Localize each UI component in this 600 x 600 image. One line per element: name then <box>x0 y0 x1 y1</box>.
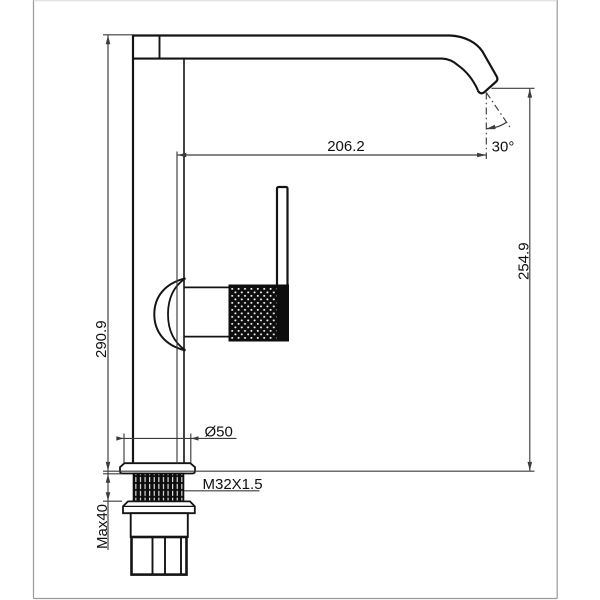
handle-lever <box>277 187 288 287</box>
dim-label-overall-height: 290.9 <box>93 320 110 358</box>
arrow-down <box>106 462 111 471</box>
dim-label-spout-angle: 30° <box>492 139 515 156</box>
dim-spout-reach: 206.2 <box>177 138 486 463</box>
mounting-thread <box>134 474 184 502</box>
thread-label: M32X1.5 <box>203 476 263 493</box>
dim-label-outlet-height: 254.9 <box>516 242 533 280</box>
arrow-left <box>116 436 123 440</box>
lever-shaft <box>277 286 289 341</box>
locknut-body <box>131 513 188 537</box>
spout-outer-profile <box>133 36 497 464</box>
dim-spout-angle: 30° <box>486 93 515 160</box>
callout-thread: M32X1.5 <box>184 476 263 493</box>
angle-arrow <box>486 125 496 130</box>
base-flange <box>120 463 195 473</box>
dim-base-diameter: Ø50 <box>116 423 236 463</box>
ribbed-nut <box>132 537 187 575</box>
arrow-down <box>528 462 533 471</box>
arrow-right <box>191 436 198 440</box>
arrow-up <box>106 35 111 44</box>
cartridge-dome-outer <box>154 278 185 350</box>
dim-outlet-height: 254.9 <box>103 88 535 471</box>
arrow-down <box>106 492 111 501</box>
drawing-canvas: 206.2 30° 254.9 290.9 Max40 <box>0 0 600 600</box>
faucet-technical-drawing: 206.2 30° 254.9 290.9 Max40 <box>0 0 600 600</box>
arrow-left <box>177 153 186 158</box>
dim-label-max-thickness: Max40 <box>94 504 111 549</box>
dim-label-base-diameter: Ø50 <box>205 423 233 440</box>
dim-label-spout-reach: 206.2 <box>327 138 365 155</box>
arrow-right <box>477 153 486 158</box>
arrow-up <box>106 474 111 483</box>
locknut-flange <box>123 501 195 513</box>
arrow-up <box>528 89 533 98</box>
